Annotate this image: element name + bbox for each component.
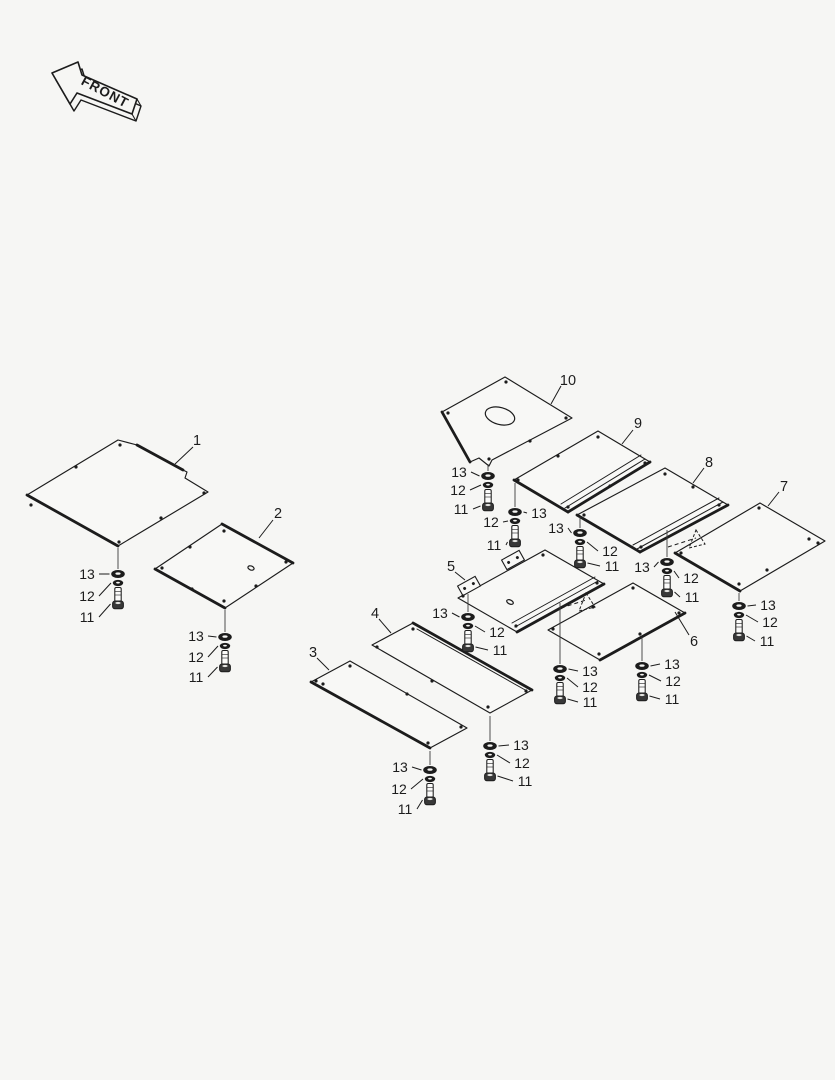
- callout-12: 12: [582, 679, 598, 695]
- callout-11: 11: [398, 801, 413, 817]
- callout-12: 12: [483, 514, 499, 530]
- bolt-shaft: [664, 576, 670, 590]
- part-number-6: 6: [690, 634, 698, 650]
- callout-13: 13: [634, 559, 650, 575]
- callout-13: 13: [582, 663, 598, 679]
- bolt-shaft: [222, 651, 228, 665]
- part-number-4: 4: [371, 606, 379, 622]
- callout-11: 11: [493, 642, 508, 658]
- bolt-shaft: [487, 760, 493, 774]
- part-number-10: 10: [560, 373, 576, 389]
- callout-12: 12: [489, 624, 505, 640]
- callout-12: 12: [602, 543, 618, 559]
- callout-13: 13: [432, 605, 448, 621]
- callout-11: 11: [487, 537, 502, 553]
- callout-13: 13: [451, 464, 467, 480]
- part-number-1: 1: [193, 433, 201, 449]
- part-number-7: 7: [780, 479, 788, 495]
- callout-11: 11: [189, 669, 204, 685]
- bolt-shaft: [512, 526, 518, 540]
- part-number-9: 9: [634, 416, 642, 432]
- callout-11: 11: [80, 609, 95, 625]
- bolt-shaft: [557, 683, 563, 697]
- parts-diagram-page: FRONT12345678910131211131211131211131211…: [0, 0, 835, 1080]
- callout-12: 12: [79, 588, 95, 604]
- bolt-shaft: [115, 588, 121, 602]
- part-number-5: 5: [447, 559, 455, 575]
- callout-11: 11: [760, 633, 775, 649]
- callout-12: 12: [514, 755, 530, 771]
- callout-11: 11: [518, 773, 533, 789]
- callout-13: 13: [531, 505, 547, 521]
- callout-13: 13: [760, 597, 776, 613]
- callout-11: 11: [454, 501, 469, 517]
- bolt-shaft: [427, 784, 433, 798]
- callout-13: 13: [548, 520, 564, 536]
- callout-13: 13: [664, 656, 680, 672]
- callout-12: 12: [450, 482, 466, 498]
- part-number-3: 3: [309, 645, 317, 661]
- part-number-8: 8: [705, 455, 713, 471]
- callout-12: 12: [762, 614, 778, 630]
- callout-13: 13: [392, 759, 408, 775]
- callout-11: 11: [665, 691, 680, 707]
- callout-11: 11: [605, 558, 620, 574]
- callout-11: 11: [685, 589, 700, 605]
- bolt-shaft: [485, 490, 491, 504]
- part-number-2: 2: [274, 506, 282, 522]
- callout-12: 12: [683, 570, 699, 586]
- bolt-shaft: [577, 547, 583, 561]
- bolt-shaft: [736, 620, 742, 634]
- callout-13: 13: [513, 737, 529, 753]
- exploded-parts-diagram: FRONT12345678910131211131211131211131211…: [0, 0, 835, 1080]
- callout-13: 13: [188, 628, 204, 644]
- callout-12: 12: [188, 649, 204, 665]
- callout-12: 12: [391, 781, 407, 797]
- callout-11: 11: [583, 694, 598, 710]
- callout-12: 12: [665, 673, 681, 689]
- bolt-shaft: [639, 680, 645, 694]
- bolt-shaft: [465, 631, 471, 645]
- callout-13: 13: [79, 566, 95, 582]
